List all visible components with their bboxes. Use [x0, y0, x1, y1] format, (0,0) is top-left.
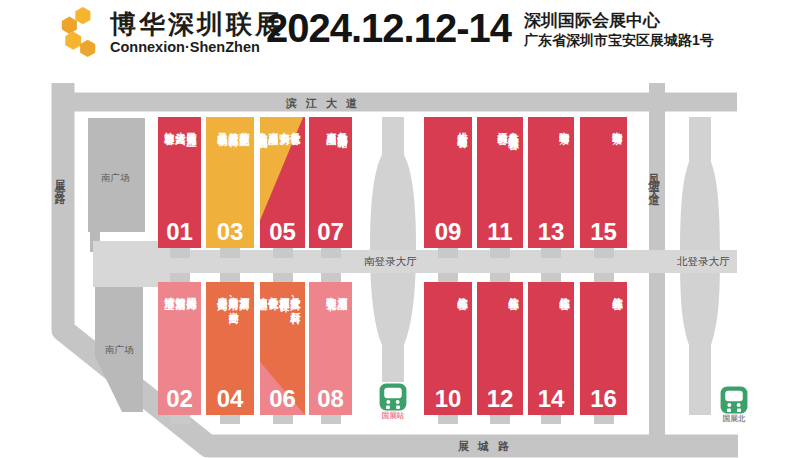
hall-09-topics: 烘焙甜点与轻餐	[424, 124, 468, 226]
hall-12: 饮品综合 12	[477, 282, 523, 415]
hall-14: 饮品综合 14	[528, 282, 574, 415]
hall-03: 营养保健品健康天然原料天然提取物 03	[206, 117, 254, 248]
road-label-binjiang: 滨江大道	[286, 96, 366, 111]
hall-05-topics: 餐饮设备中央厨房桌面用品食品及加工包装	[260, 124, 301, 226]
hall-topic: 饮品综合	[559, 289, 570, 391]
hall-11: 食品及餐饮食材综合酒类综合 11	[477, 117, 523, 248]
hall-topic: 旅游装备	[164, 124, 175, 226]
south-login-hall-shape	[370, 117, 416, 382]
hall-topic: 饮品综合	[457, 289, 468, 391]
hall-topic: 智慧酒店	[175, 289, 186, 391]
hall-10-number: 10	[424, 385, 472, 413]
logo-subtitle: Connexion·ShenZhen	[110, 39, 284, 56]
hall-topic: 餐饮设备	[290, 124, 301, 226]
hall-01-topics: 民宿文化产业生活方式旅游装备	[158, 124, 197, 226]
hall-topic: 连锁加盟	[257, 289, 268, 391]
hall-topic: 摩登设计周	[217, 289, 228, 391]
metro-icon	[379, 383, 407, 411]
hall-06: 餐饮家具、新材料酒店工程设计餐饮设计连锁加盟 06	[260, 282, 305, 415]
hall-01-number: 01	[158, 218, 201, 246]
station-guozhanbei: 国展北	[717, 386, 751, 423]
hall-topic: 生活方式	[175, 124, 186, 226]
hall-10: 饮品综合 10	[424, 282, 472, 415]
hall-topic: 清洁环卫	[164, 289, 175, 391]
hall-08-number: 08	[309, 385, 352, 413]
hall-topic: 餐饮设备国际馆	[337, 124, 348, 226]
logo-title: 博华深圳联展	[110, 9, 284, 39]
logo-text: 博华深圳联展 Connexion·ShenZhen	[110, 9, 284, 56]
hall-09: 烘焙甜点与轻餐 09	[424, 117, 472, 248]
venue-name: 深圳国际会展中心	[524, 10, 714, 31]
hall-01: 民宿文化产业生活方式旅游装备 01	[158, 117, 201, 248]
hall-13: 咖啡与茶 13	[528, 117, 574, 248]
hall-topic: 餐饮设计	[268, 289, 279, 391]
hall-13-number: 13	[528, 218, 574, 246]
hall-topic: 健康天然原料	[228, 124, 239, 226]
hall-topic: 饮品综合	[612, 289, 623, 391]
floorplan-map: 滨江大道 展城路 展景路 凤塘大道 南广场 南广场 南登录大厅 北登录大厅 民宿…	[0, 72, 791, 458]
hall-topic: 酒店用品	[337, 289, 348, 391]
hall-topic: 餐饮家具、新材料	[290, 289, 301, 391]
hall-12-number: 12	[477, 385, 523, 413]
hall-topic: 咖啡文化节	[326, 289, 337, 391]
hall-topic: 照明灯饰	[186, 289, 197, 391]
hall-topic: 天然提取物	[217, 124, 228, 226]
hall-topic: 桌面用品	[268, 124, 279, 226]
hall-05: 餐饮设备中央厨房桌面用品食品及加工包装 05	[260, 117, 305, 248]
hall-topic: 民宿文化产业	[186, 124, 197, 226]
station-guozhan: 国展站	[376, 383, 410, 420]
hall-15: 咖啡与茶 15	[580, 117, 627, 248]
venue-info: 深圳国际会展中心 广东省深圳市宝安区展城路1号	[524, 10, 714, 50]
road-label-zhancheng: 展城路	[458, 439, 518, 454]
hall-15-topics: 咖啡与茶	[580, 124, 623, 226]
hall-03-number: 03	[206, 218, 254, 246]
hall-07-topics: 餐饮设备国际馆桌面用品	[309, 124, 348, 226]
hall-topic: 酒店工程设计	[279, 289, 290, 391]
hall-16-topics: 饮品综合	[580, 289, 623, 391]
station-guozhanbei-label: 国展北	[717, 414, 751, 423]
hall-topic: 食品及餐饮食材综合	[508, 124, 519, 226]
hall-10-topics: 饮品综合	[424, 289, 468, 391]
hall-15-number: 15	[580, 218, 627, 246]
hall-04-topics: 酒店家具康养商用、禅空间摩登设计周	[206, 289, 250, 391]
hall-14-topics: 饮品综合	[528, 289, 570, 391]
hall-topic: 烘焙甜点与轻餐	[457, 124, 468, 226]
hall-topic: 咖啡与茶	[612, 124, 623, 226]
hall-14-number: 14	[528, 385, 574, 413]
hall-08-topics: 酒店用品咖啡文化节	[309, 289, 348, 391]
hall-12-topics: 饮品综合	[477, 289, 519, 391]
hall-06-number: 06	[260, 385, 305, 413]
road-label-zhanjing: 展景路	[52, 170, 67, 191]
south-plaza-lower-label: 南广场	[105, 344, 134, 357]
hall-topic: 饮品综合	[508, 289, 519, 391]
hall-04-number: 04	[206, 385, 254, 413]
hall-02: 照明灯饰智慧酒店清洁环卫 02	[158, 282, 201, 415]
south-plaza-upper-label: 南广场	[101, 172, 130, 185]
hall-03-topics: 营养保健品健康天然原料天然提取物	[206, 124, 250, 226]
hall-02-topics: 照明灯饰智慧酒店清洁环卫	[158, 289, 197, 391]
hall-02-number: 02	[158, 385, 201, 413]
hall-topic: 食品及加工包装	[257, 124, 268, 226]
hall-topic: 咖啡与茶	[559, 124, 570, 226]
south-login-hall-label: 南登录大厅	[364, 255, 417, 269]
hall-topic: 中央厨房	[279, 124, 290, 226]
hall-07: 餐饮设备国际馆桌面用品 07	[309, 117, 352, 248]
hall-11-number: 11	[477, 218, 523, 246]
hall-04: 酒店家具康养商用、禅空间摩登设计周 04	[206, 282, 254, 415]
road-label-fengtang: 凤塘大道	[646, 164, 661, 192]
exhibition-map-page: 博华深圳联展 Connexion·ShenZhen 2024.12.12-14 …	[0, 0, 791, 458]
hall-16: 饮品综合 16	[580, 282, 627, 415]
hall-topic: 营养保健品	[239, 124, 250, 226]
hall-13-topics: 咖啡与茶	[528, 124, 570, 226]
hall-topic: 桌面用品	[326, 124, 337, 226]
metro-icon	[720, 386, 748, 414]
hall-08: 酒店用品咖啡文化节 08	[309, 282, 352, 415]
logo: 博华深圳联展 Connexion·ShenZhen	[56, 4, 284, 60]
hall-topic: 酒类综合	[497, 124, 508, 226]
hall-07-number: 07	[309, 218, 352, 246]
hall-topic: 酒店家具	[239, 289, 250, 391]
venue-address: 广东省深圳市宝安区展城路1号	[524, 31, 714, 50]
header: 博华深圳联展 Connexion·ShenZhen 2024.12.12-14 …	[0, 0, 791, 72]
hall-11-topics: 食品及餐饮食材综合酒类综合	[477, 124, 519, 226]
hall-05-number: 05	[260, 218, 305, 246]
event-dates: 2024.12.12-14	[266, 6, 516, 51]
honeycomb-logo-icon	[56, 4, 102, 60]
hall-16-number: 16	[580, 385, 627, 413]
hall-06-topics: 餐饮家具、新材料酒店工程设计餐饮设计连锁加盟	[260, 289, 301, 391]
hall-09-number: 09	[424, 218, 472, 246]
hall-topic: 康养商用、禅空间	[228, 289, 239, 391]
north-login-hall-label: 北登录大厅	[677, 255, 730, 269]
station-guozhan-label: 国展站	[376, 411, 410, 420]
